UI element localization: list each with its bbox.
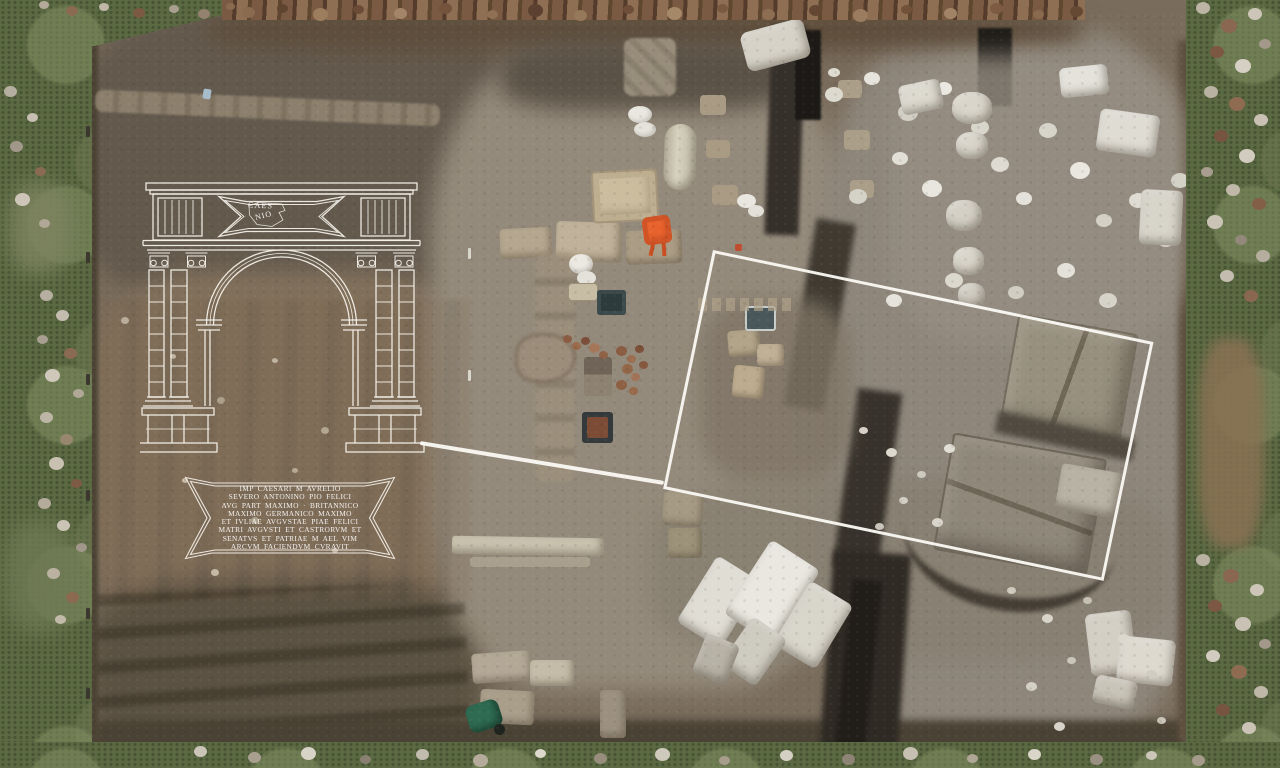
survey-stake <box>86 490 90 501</box>
inscription-plaque: IMP CAESARI M AVRELIO SEVERO ANTONINO PI… <box>205 485 375 551</box>
rubble-scatter-right <box>1198 556 1208 564</box>
survey-stake-white <box>468 248 471 259</box>
rubble-scatter-right <box>1198 4 1208 12</box>
excavation-aerial-photo: CAES NIO IMP CAESARI M AVRELIO SEVERO AN… <box>0 0 1280 768</box>
survey-stake <box>86 374 90 385</box>
survey-stake <box>86 688 90 699</box>
rubble-scatter-topleft <box>40 2 48 8</box>
survey-stake <box>86 252 90 263</box>
dry-grass-patch <box>4 520 76 632</box>
rubble-band-top <box>222 0 1085 20</box>
dirt-path-right <box>1198 338 1264 548</box>
rubble-scatter-top <box>226 3 235 10</box>
rubble-scatter-left <box>6 88 15 95</box>
arch-reconstruction-drawing <box>140 180 425 455</box>
inscription-line-8: ARCVM FACIENDVM CVRAVIT <box>205 543 375 551</box>
survey-stake <box>86 126 90 137</box>
survey-stake-white <box>468 370 471 381</box>
dry-grass-patch <box>8 182 70 274</box>
survey-stake <box>86 608 90 619</box>
rubble-scatter-left <box>42 292 51 299</box>
grass-strip-bottom <box>0 742 1280 768</box>
arch-lines <box>140 183 424 452</box>
rubble-scatter-bottom <box>196 748 205 755</box>
grass-strip-left <box>0 0 92 768</box>
